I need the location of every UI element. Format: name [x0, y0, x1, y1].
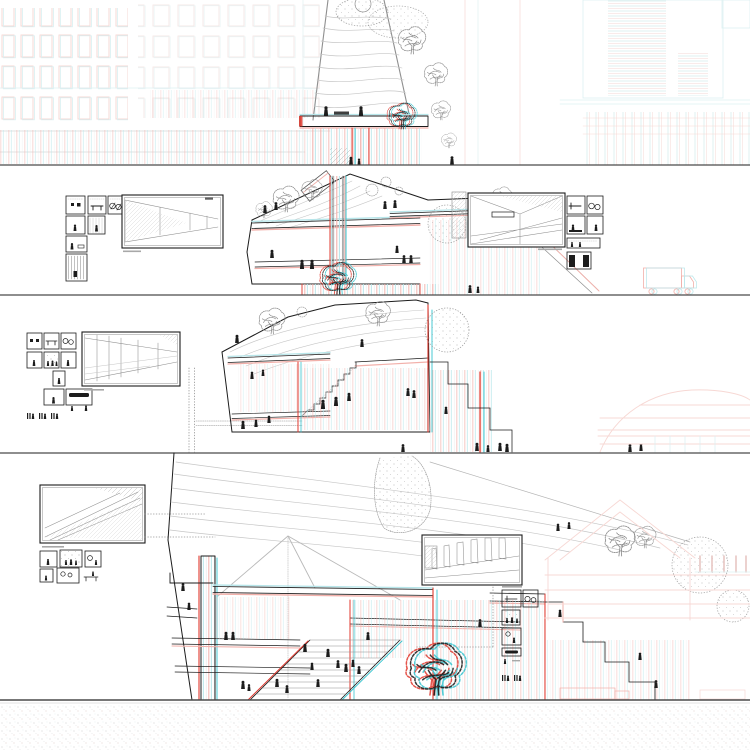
band-3-mid-levels — [27, 300, 750, 452]
facade-louvered-right — [560, 0, 750, 165]
canopy-plan-dotted — [336, 0, 428, 38]
figure — [450, 156, 454, 164]
domed-hall-outline — [598, 390, 750, 452]
figure — [358, 159, 361, 165]
band-2-upper-levels — [66, 171, 697, 295]
core-shaft — [330, 176, 346, 284]
tree-scribble — [424, 63, 447, 86]
band-4-ground-levels — [40, 453, 750, 700]
framed-view-band2-left — [122, 195, 223, 252]
band-1-tower-top — [0, 0, 750, 165]
facade-window-grid-left — [0, 8, 128, 122]
tower-cone — [313, 0, 428, 120]
truck-outline — [644, 268, 697, 294]
canopy-plan-dotted — [717, 590, 749, 622]
planting-blob-dotted — [374, 456, 431, 533]
micro-caption — [538, 249, 562, 251]
ground-stipple — [0, 704, 750, 750]
figure — [324, 106, 328, 115]
legend-cluster-band4-left — [40, 485, 215, 583]
figure — [359, 106, 363, 115]
legend-cluster-band2-left — [66, 196, 124, 281]
board-canvas: Anaglyph architectural board: four stack… — [0, 0, 750, 750]
micro-caption — [123, 251, 141, 253]
tree-scribble — [431, 101, 450, 120]
micro-caption — [84, 389, 104, 391]
architecture-board: Anaglyph architectural board: four stack… — [0, 0, 750, 750]
micro-caption — [502, 586, 522, 588]
tree-scribble — [302, 180, 323, 200]
tree-scribble — [442, 133, 457, 148]
facade-base-striping — [0, 130, 322, 164]
figure — [349, 157, 353, 165]
canopy-plan-dotted — [425, 308, 469, 352]
micro-caption — [42, 546, 64, 548]
section-band3 — [222, 300, 643, 452]
tall-pier — [199, 556, 217, 700]
